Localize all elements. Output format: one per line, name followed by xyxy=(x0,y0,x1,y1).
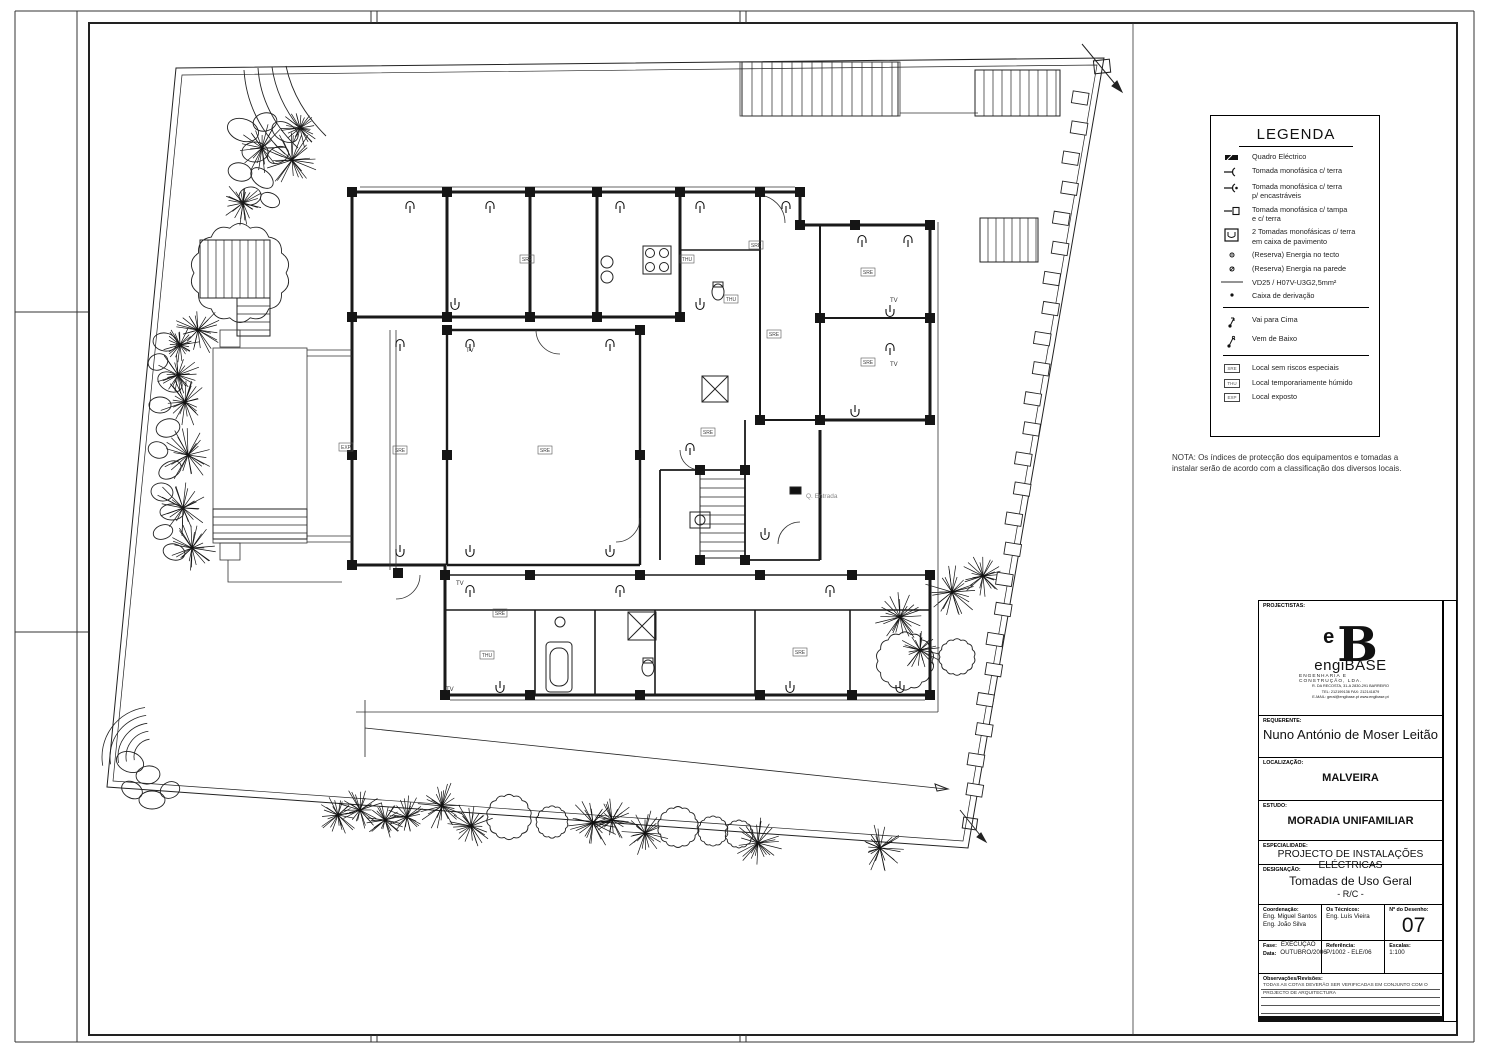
legend-title: LEGENDA xyxy=(1239,126,1353,147)
electrical-board-icon xyxy=(1221,153,1243,162)
legend-item: Tomada monofásica c/ terrap/ encastrávei… xyxy=(1221,182,1371,200)
coordination-row: Coordenação: Eng. Miguel Santos Eng. Joã… xyxy=(1259,905,1442,941)
svg-text:SRE: SRE xyxy=(863,270,874,276)
legend-item: 2 Tomadas monofásicas c/ terraem caixa d… xyxy=(1221,227,1371,245)
legend-item: Caixa de derivação xyxy=(1221,291,1371,300)
svg-text:SRE: SRE xyxy=(495,611,506,617)
svg-text:SRE: SRE xyxy=(522,257,533,263)
svg-text:TV: TV xyxy=(456,581,464,587)
legend-item: Quadro Eléctrico xyxy=(1221,152,1371,162)
junction-box-icon xyxy=(1221,292,1243,298)
legend-item: VD25 / H07V-U3G2,5mm² xyxy=(1221,278,1371,287)
reference-value: P/1002 - ELE/06 xyxy=(1322,949,1384,957)
location-value: MALVEIRA xyxy=(1259,772,1442,784)
coordinator-name: Eng. Miguel Santos xyxy=(1259,913,1321,921)
date-value: OUTUBRO/2006 xyxy=(1276,949,1326,957)
legend-item: THU Local temporariamente húmido xyxy=(1221,378,1371,388)
room-code-labels: SRE THU SRE THU SRE SRE SRE SRE SRE SRE … xyxy=(339,241,875,659)
svg-text:SRE: SRE xyxy=(769,332,780,338)
observation-line: TODAS AS COTAS DEVERÃO SER VERIFICADAS E… xyxy=(1261,982,1440,990)
vegetation-and-stones xyxy=(102,62,1089,871)
client-name: Nuno António de Moser Leitão xyxy=(1259,727,1442,742)
study-section: ESTUDO: MORADIA UNIFAMILIAR xyxy=(1259,801,1442,841)
svg-text:SRE: SRE xyxy=(395,448,406,454)
legend-item: Tomada monofásica c/ terra xyxy=(1221,166,1371,177)
technician-name: Eng. Luís Vieira xyxy=(1322,913,1384,921)
drawing-number: 07 xyxy=(1385,913,1442,939)
legend-item: Vem de Baixo xyxy=(1221,334,1371,348)
legend-divider xyxy=(1223,307,1369,308)
svg-text:SRE: SRE xyxy=(703,430,714,436)
svg-text:THU: THU xyxy=(482,653,493,659)
title-block: PROJECTISTAS: eB engiBASE ENGENHARIA E C… xyxy=(1258,600,1443,1022)
observations-section: Observações/Revisões: TODAS AS COTAS DEV… xyxy=(1259,974,1442,1017)
designers-section: PROJECTISTAS: eB engiBASE ENGENHARIA E C… xyxy=(1259,601,1442,716)
wall-power-icon xyxy=(1221,265,1243,273)
designation-floor: - R/C - xyxy=(1259,889,1442,899)
flush-socket-icon xyxy=(1221,183,1243,193)
svg-text:TV: TV xyxy=(446,687,454,693)
legend-item: Tomada monofásica c/ tampae c/ terra xyxy=(1221,205,1371,223)
svg-text:TV: TV xyxy=(890,298,898,304)
floor-box-socket-icon xyxy=(1221,228,1243,242)
svg-text:SRE: SRE xyxy=(863,360,874,366)
ceiling-power-icon xyxy=(1221,251,1243,259)
svg-text:THU: THU xyxy=(682,257,693,263)
fixtures xyxy=(546,246,801,692)
title-block-bottom-bar xyxy=(1258,1016,1443,1022)
svg-text:SRE: SRE xyxy=(540,448,551,454)
designation-section: DESIGNAÇÃO: Tomadas de Uso Geral - R/C - xyxy=(1259,865,1442,905)
svg-text:TV: TV xyxy=(466,348,474,354)
drawing-sheet: SRE THU SRE THU SRE SRE SRE SRE SRE SRE … xyxy=(0,0,1488,1052)
phase-value: EXECUÇÃO xyxy=(1277,941,1316,949)
location-code-badge: SRE xyxy=(1224,364,1240,373)
legend-item: (Reserva) Energia na parede xyxy=(1221,264,1371,273)
location-code-badge: THU xyxy=(1224,379,1240,388)
legend-item: Vai para Cima xyxy=(1221,315,1371,329)
driveway-curves xyxy=(244,66,326,154)
copyright-strip: ESTE DESENHO É PROPRIEDADE DOS AUTORES E… xyxy=(1443,600,1457,1022)
svg-text:EXP: EXP xyxy=(341,445,352,451)
plan-text-labels: TV TV TV TV TV Q. Entrada xyxy=(446,298,898,693)
study-value: MORADIA UNIFAMILIAR xyxy=(1259,815,1442,827)
socket-icon xyxy=(1221,167,1243,177)
location-code-badge: EXP xyxy=(1224,393,1240,402)
engibase-logo: eB engiBASE ENGENHARIA E CONSTRUÇÃO, LDA… xyxy=(1259,611,1442,701)
location-section: LOCALIZAÇÃO: MALVEIRA xyxy=(1259,758,1442,801)
client-section: REQUERENTE: Nuno António de Moser Leitão xyxy=(1259,716,1442,758)
cable-icon xyxy=(1221,279,1243,285)
goes-up-icon xyxy=(1221,316,1243,329)
scale-value: 1:100 xyxy=(1385,949,1442,957)
legend-panel: LEGENDA Quadro Eléctrico Tomada monofási… xyxy=(1210,115,1380,437)
legend-item: (Reserva) Energia no tecto xyxy=(1221,250,1371,259)
phase-row: Fase:EXECUÇÃO Data:OUTUBRO/2006 Referênc… xyxy=(1259,941,1442,974)
comes-from-below-icon xyxy=(1221,335,1243,348)
covered-socket-icon xyxy=(1221,206,1243,216)
coordinator-name: Eng. João Silva xyxy=(1259,921,1321,929)
legend-item: SRE Local sem riscos especiais xyxy=(1221,363,1371,373)
legend-item: EXP Local exposto xyxy=(1221,392,1371,402)
svg-text:THU: THU xyxy=(726,297,737,303)
specialty-section: ESPECIALIDADE: PROJECTO DE INSTALAÇÕES E… xyxy=(1259,841,1442,865)
svg-text:Q. Entrada: Q. Entrada xyxy=(806,493,838,500)
socket-symbols xyxy=(396,202,912,693)
designation-value: Tomadas de Uso Geral xyxy=(1259,874,1442,888)
svg-text:SRE: SRE xyxy=(751,243,762,249)
legend-divider xyxy=(1223,355,1369,356)
house-walls xyxy=(352,192,930,695)
protection-note: NOTA: Os índices de protecção dos equipa… xyxy=(1172,452,1464,474)
svg-text:SRE: SRE xyxy=(795,650,806,656)
observation-line: PROJECTO DE ARQUITECTURA xyxy=(1261,990,1440,998)
svg-text:TV: TV xyxy=(890,362,898,368)
